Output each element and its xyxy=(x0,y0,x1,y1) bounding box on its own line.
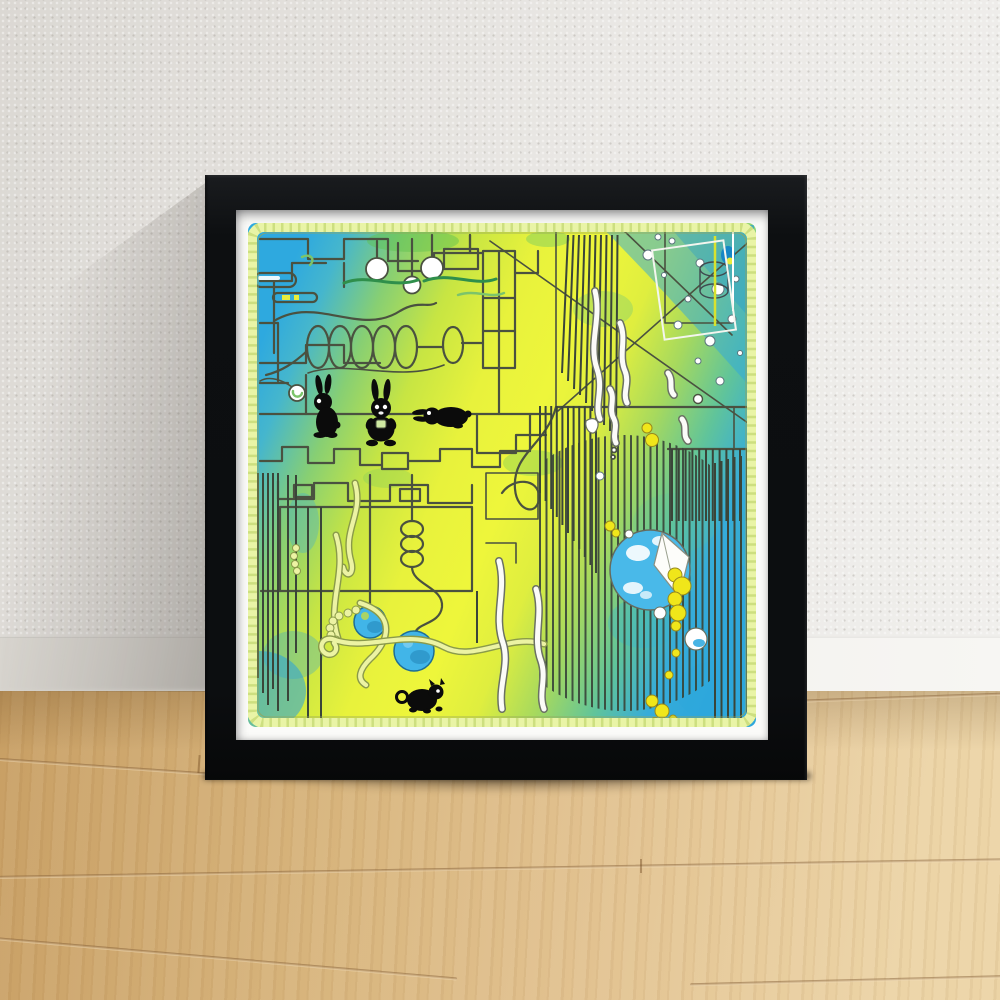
green-cup xyxy=(376,420,386,428)
picture-frame xyxy=(205,175,807,780)
white-dot-on-line xyxy=(694,395,703,404)
artwork xyxy=(248,223,756,727)
floor-plank-seam xyxy=(0,937,457,981)
floor-plank-seam xyxy=(0,758,206,776)
floor-plank-seam xyxy=(690,975,1000,987)
floor-plank-joint xyxy=(640,859,642,873)
floor-plank-seam xyxy=(0,858,1000,879)
mat-border xyxy=(236,210,768,740)
photo-framed-art-print xyxy=(0,0,1000,1000)
floor-plank-seam xyxy=(800,692,1000,702)
